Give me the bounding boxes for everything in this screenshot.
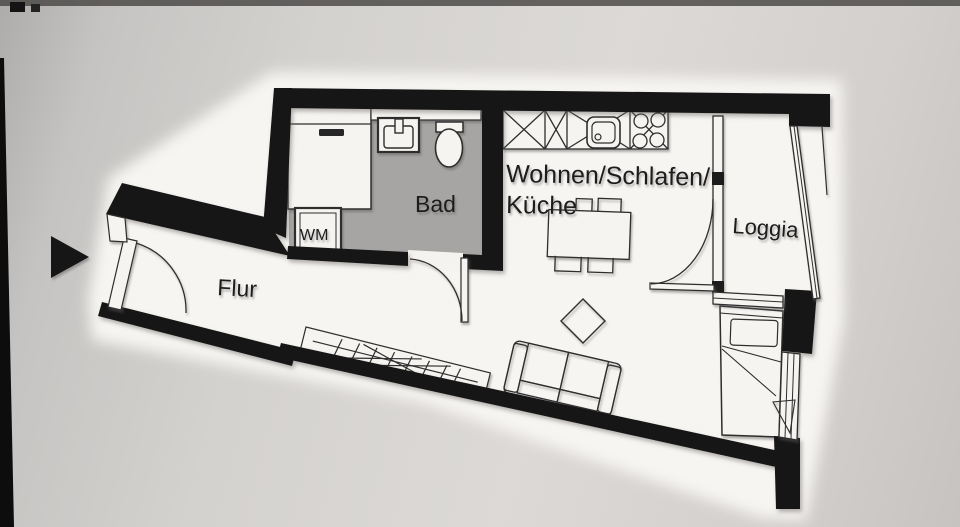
photo-left-edge — [0, 58, 14, 527]
kitchen-sink-icon — [587, 117, 620, 148]
living-room-label-line1: Wohnen/Schlafen/ — [506, 160, 710, 192]
loggia-label: Loggia — [732, 213, 800, 243]
shower-drain — [319, 129, 344, 136]
entrance-arrow-icon — [51, 236, 89, 278]
loggia-partition-window — [712, 116, 724, 293]
kitchen-counter — [503, 110, 668, 149]
wall-jamb — [107, 214, 127, 242]
wall-loggia-bottom-right — [782, 289, 817, 354]
photographed-floor-plan: Wohnen/Schlafen/ Küche Bad Flur Loggia W… — [0, 0, 960, 527]
bathroom-door-opening — [408, 250, 463, 272]
photo-top-edge — [0, 0, 960, 6]
living-room-label-line2: Küche — [506, 191, 577, 220]
screen-mark-icon — [10, 2, 25, 12]
bathroom-label: Bad — [415, 191, 456, 217]
bed — [720, 306, 783, 437]
shower — [288, 106, 371, 209]
hallway-label: Flur — [217, 274, 258, 302]
floor-plan-drawing: Wohnen/Schlafen/ Küche Bad Flur Loggia W… — [0, 0, 960, 527]
washbasin-icon — [378, 118, 419, 152]
screen-mark-icon — [31, 4, 40, 12]
toilet-icon — [436, 122, 464, 167]
washing-machine-label: WM — [300, 227, 328, 244]
wall-right-stub — [774, 436, 800, 509]
